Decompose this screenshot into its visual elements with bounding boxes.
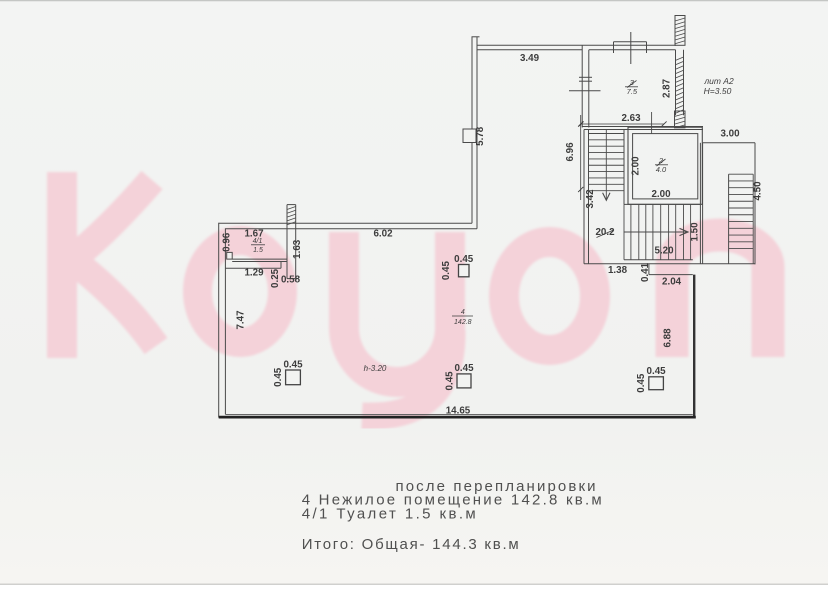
svg-text:2.00: 2.00 xyxy=(631,156,642,176)
svg-text:142.8: 142.8 xyxy=(454,319,472,326)
svg-text:1.38: 1.38 xyxy=(608,265,628,276)
svg-text:0.45: 0.45 xyxy=(441,261,452,281)
svg-text:7.5: 7.5 xyxy=(627,87,638,96)
svg-text:0.96: 0.96 xyxy=(221,232,232,252)
svg-text:3.00: 3.00 xyxy=(720,129,740,140)
svg-text:3.42: 3.42 xyxy=(585,189,596,209)
svg-text:6.88: 6.88 xyxy=(662,328,673,348)
svg-text:6.96: 6.96 xyxy=(565,142,576,162)
svg-text:0.58: 0.58 xyxy=(281,275,301,286)
svg-text:1.29: 1.29 xyxy=(244,267,264,278)
svg-text:2.87: 2.87 xyxy=(662,78,673,98)
svg-text:H=3.50: H=3.50 xyxy=(704,86,732,96)
svg-text:0.25: 0.25 xyxy=(270,268,281,288)
svg-text:1.5: 1.5 xyxy=(253,247,263,254)
svg-text:0.45: 0.45 xyxy=(283,359,303,370)
svg-text:0.45: 0.45 xyxy=(647,366,667,377)
svg-text:0.45: 0.45 xyxy=(636,373,647,393)
svg-text:7.47: 7.47 xyxy=(236,310,247,330)
svg-text:h-3.20: h-3.20 xyxy=(364,364,387,373)
svg-text:4.50: 4.50 xyxy=(753,181,764,201)
svg-text:3.49: 3.49 xyxy=(520,53,540,64)
svg-text:0.41: 0.41 xyxy=(640,262,651,282)
svg-text:4/1: 4/1 xyxy=(253,238,263,245)
svg-text:5.20: 5.20 xyxy=(654,246,674,257)
svg-text:0.45: 0.45 xyxy=(454,254,474,265)
svg-text:0.45: 0.45 xyxy=(454,363,474,374)
svg-text:4.0: 4.0 xyxy=(656,165,667,174)
svg-text:14.65: 14.65 xyxy=(446,406,471,417)
svg-text:1.63: 1.63 xyxy=(292,239,303,259)
svg-text:лит А2: лит А2 xyxy=(703,76,734,86)
svg-text:6.02: 6.02 xyxy=(373,228,393,239)
svg-text:4: 4 xyxy=(461,309,465,316)
svg-text:0.45: 0.45 xyxy=(273,367,284,387)
svg-text:0.45: 0.45 xyxy=(444,371,455,391)
svg-text:2.00: 2.00 xyxy=(651,189,671,200)
svg-text:5.78: 5.78 xyxy=(475,126,486,146)
svg-text:2.04: 2.04 xyxy=(662,277,682,288)
svg-text:2.63: 2.63 xyxy=(621,113,641,124)
svg-text:1.50: 1.50 xyxy=(690,222,701,242)
svg-text:Итого: Общая- 144.3 кв.м: Итого: Общая- 144.3 кв.м xyxy=(302,536,519,553)
